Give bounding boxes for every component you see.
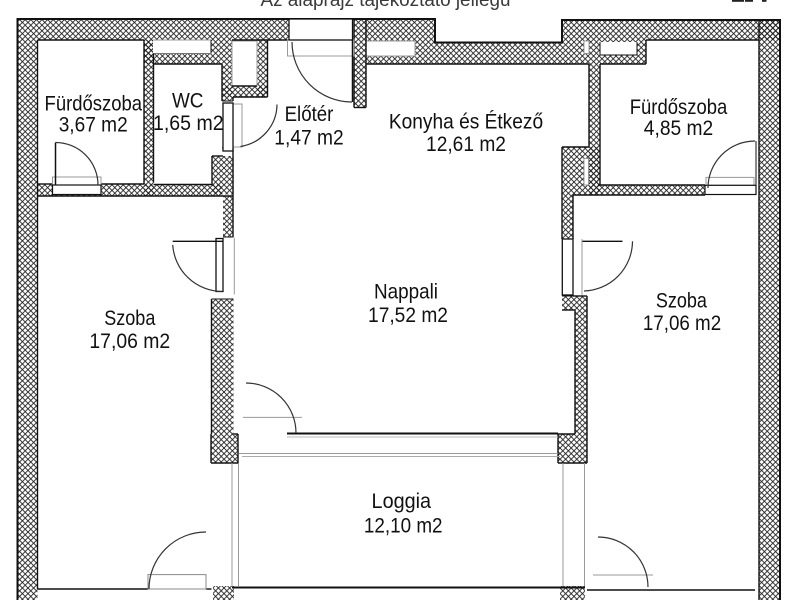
svg-text:17,52 m2: 17,52 m2 (368, 303, 448, 327)
svg-text:Előtér: Előtér (285, 102, 334, 126)
svg-text:WC: WC (172, 88, 204, 112)
svg-text:1,65 m2: 1,65 m2 (153, 111, 224, 135)
svg-text:Szoba: Szoba (656, 289, 707, 313)
svg-text:17,06 m2: 17,06 m2 (643, 311, 721, 335)
svg-text:Az alaprajz tájékoztató jelleg: Az alaprajz tájékoztató jellegű (261, 0, 511, 11)
svg-text:Nappali: Nappali (374, 280, 438, 304)
svg-text:Konyha és Étkező: Konyha és Étkező (389, 109, 543, 134)
svg-text:12,10 m2: 12,10 m2 (364, 514, 443, 538)
svg-text:12,61 m2: 12,61 m2 (426, 132, 506, 156)
svg-text:Loggia: Loggia (372, 489, 432, 513)
svg-text:17,06 m2: 17,06 m2 (89, 329, 170, 353)
svg-text:Szoba: Szoba (104, 306, 155, 330)
svg-text:4,85 m2: 4,85 m2 (644, 116, 713, 140)
svg-text:1,47 m2: 1,47 m2 (274, 125, 343, 149)
svg-text:3,67 m2: 3,67 m2 (59, 113, 128, 137)
